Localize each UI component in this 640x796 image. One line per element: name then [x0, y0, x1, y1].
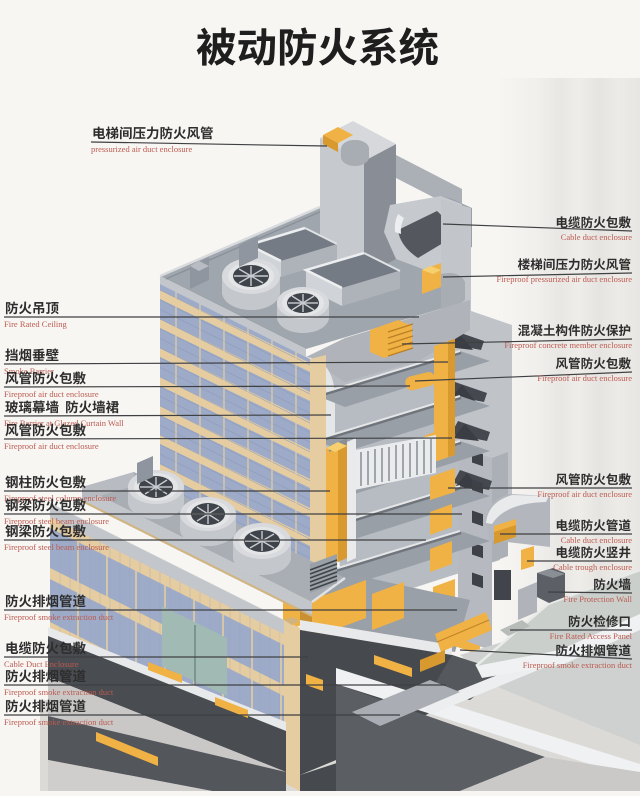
svg-text:Fireproof smoke extraction duc: Fireproof smoke extraction duct [4, 687, 114, 697]
svg-text:Cable duct enclosure: Cable duct enclosure [561, 535, 633, 545]
svg-text:Fire Rated Ceiling: Fire Rated Ceiling [4, 319, 68, 329]
svg-text:Fireproof smoke extraction duc: Fireproof smoke extraction duct [4, 612, 114, 622]
svg-text:Fireproof air duct enclosure: Fireproof air duct enclosure [537, 489, 632, 499]
svg-text:Fireproof air duct enclosure: Fireproof air duct enclosure [4, 441, 99, 451]
svg-text:Fireproof steel beam enclosur: Fireproof steel beam enclosure [4, 542, 109, 552]
svg-text:Cable trough enclosure: Cable trough enclosure [553, 562, 632, 572]
svg-text:Fireproof air duct enclosure: Fireproof air duct enclosure [4, 389, 99, 399]
svg-text:Fireproof pressurized air duct: Fireproof pressurized air duct enclosure [497, 274, 633, 284]
svg-text:Fireproof smoke extraction duc: Fireproof smoke extraction duct [4, 717, 114, 727]
svg-text:Fireproof air duct enclosure: Fireproof air duct enclosure [537, 373, 632, 383]
svg-text:Cable duct enclosure: Cable duct enclosure [561, 232, 633, 242]
svg-text:Fireproof concrete member enc: Fireproof concrete member enclosure [504, 340, 632, 350]
svg-text:Cable Duct Enclosure: Cable Duct Enclosure [4, 659, 79, 669]
svg-text:Fire Protection Wall: Fire Protection Wall [563, 594, 632, 604]
svg-text:Fireproof steel beam enclosur: Fireproof steel beam enclosure [4, 516, 109, 526]
svg-text:pressurized air duct enclosure: pressurized air duct enclosure [91, 144, 192, 154]
svg-text:Fireproof smoke extraction duc: Fireproof smoke extraction duct [523, 660, 633, 670]
svg-text:Fire Rated Access Panel: Fire Rated Access Panel [550, 631, 633, 641]
